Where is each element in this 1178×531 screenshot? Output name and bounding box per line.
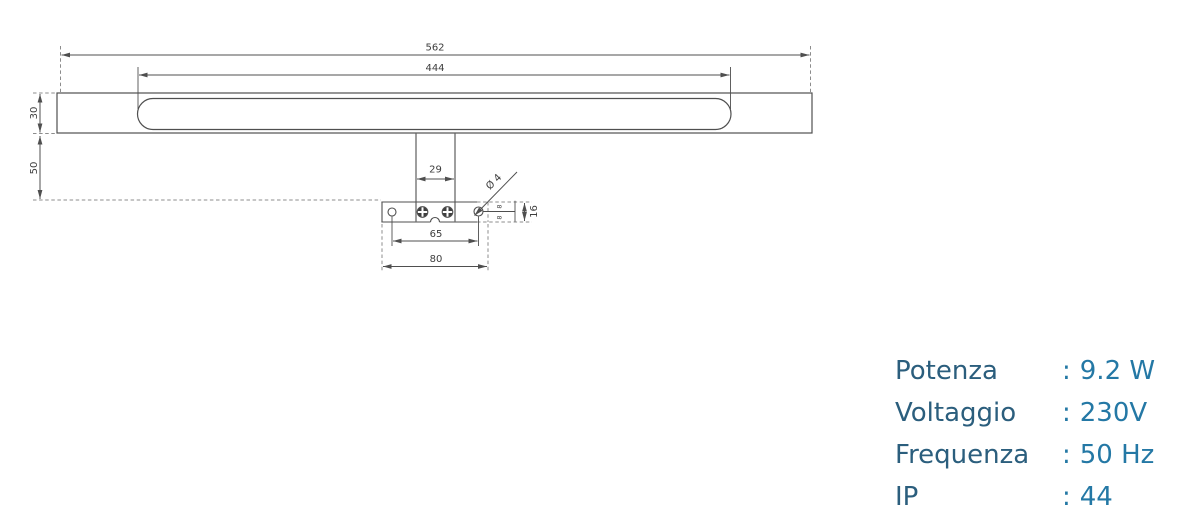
dim-label-50: 50 — [29, 162, 40, 175]
spec-value: 44 — [1080, 476, 1113, 518]
spec-row-frequenza: Frequenza : 50 Hz — [895, 434, 1170, 476]
mount-hole-left — [388, 208, 396, 216]
spec-separator: : — [1062, 476, 1071, 518]
dim-body-height: 30 — [29, 93, 56, 134]
mounting-plate — [381, 202, 532, 222]
dim-label-80: 80 — [430, 254, 443, 265]
dim-label-444: 444 — [425, 63, 444, 74]
spec-label: Frequenza — [895, 434, 1062, 476]
screw-left — [417, 207, 428, 218]
spec-label: IP — [895, 476, 1062, 518]
cable-notch — [431, 218, 440, 223]
spec-value: 230V — [1080, 392, 1147, 434]
dim-label-30: 30 — [29, 107, 40, 120]
dim-label-29: 29 — [429, 165, 442, 176]
dim-stem-width: 29 — [417, 165, 454, 180]
dim-label-8-lower: 8 — [496, 215, 504, 219]
dim-label-16: 16 — [529, 205, 540, 218]
spec-table: Potenza : 9.2 W Voltaggio : 230V Frequen… — [895, 350, 1170, 518]
dim-label-562: 562 — [425, 43, 444, 54]
spec-label: Potenza — [895, 350, 1062, 392]
spec-row-potenza: Potenza : 9.2 W — [895, 350, 1170, 392]
spec-row-voltaggio: Voltaggio : 230V — [895, 392, 1170, 434]
spec-value: 50 Hz — [1080, 434, 1155, 476]
dim-hole-spacing: 65 — [392, 217, 479, 247]
dim-plate-depth-group: 8 8 16 — [483, 201, 540, 222]
page: 562 444 30 50 — [0, 0, 1178, 531]
spec-separator: : — [1062, 434, 1071, 476]
dim-label-hole-diameter: Ø 4 — [483, 171, 504, 192]
spec-value: 9.2 W — [1080, 350, 1155, 392]
spec-separator: : — [1062, 350, 1071, 392]
dim-label-65: 65 — [430, 229, 443, 240]
spec-label: Voltaggio — [895, 392, 1062, 434]
screw-right — [442, 207, 453, 218]
lamp-body — [57, 93, 812, 133]
dim-label-8-upper: 8 — [496, 204, 504, 208]
dim-mount-drop: 50 — [29, 136, 381, 200]
spec-separator: : — [1062, 392, 1071, 434]
spec-row-ip: IP : 44 — [895, 476, 1170, 518]
